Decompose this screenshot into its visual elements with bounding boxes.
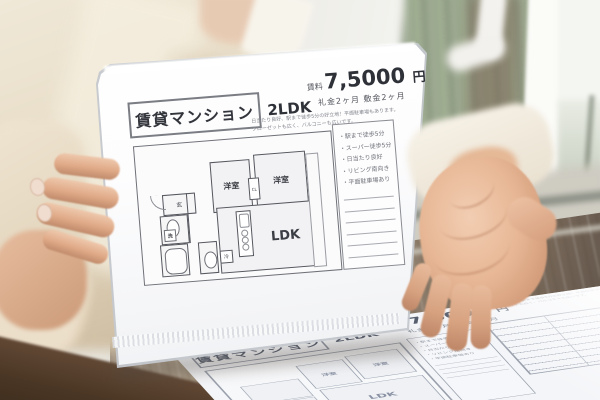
toilet-room (198, 241, 220, 274)
closet: CL (248, 177, 261, 200)
flyer-held: 賃貸マンション 2LDK 賃料7,5000 円 礼金2ヶ月 敷金2ヶ月 日当たり… (110, 62, 429, 335)
flyer1-title: 賃貸マンション (134, 99, 255, 132)
flyer1-rent-value: 7,5000 (323, 63, 406, 93)
laundry-room: 洗 (160, 214, 190, 245)
photo-scene: 賃貸マンション 2LDK 賃料7,5000 円 礼金2ヶ月 敷金2ヶ月 日当たり… (0, 0, 600, 400)
flyer1-rent-label: 賃料 (306, 82, 323, 92)
window-glass-upper (558, 0, 600, 105)
flyer1-feature-list: ・駅まで徒歩5分 ・スーパー徒歩5分 ・日当たり良好 ・リビング南向き ・平面駐… (332, 119, 406, 270)
right-index-finger (470, 285, 491, 349)
entrance-door-arc (150, 195, 166, 211)
bathroom (160, 243, 190, 277)
fridge: 冷 (220, 250, 234, 264)
kitchen-sink (239, 213, 250, 228)
flyer1-title-box: 賃貸マンション (127, 92, 261, 138)
laundry-label: 洗 (164, 229, 177, 242)
toilet (204, 251, 218, 269)
flyer1-floorplan: 洋室 洋室 CL LDK 玄 洗 冷 (133, 130, 343, 286)
flyer1-rent-unit: 円 (412, 70, 426, 86)
bathtub (164, 247, 188, 275)
entrance: 玄 (162, 193, 197, 217)
